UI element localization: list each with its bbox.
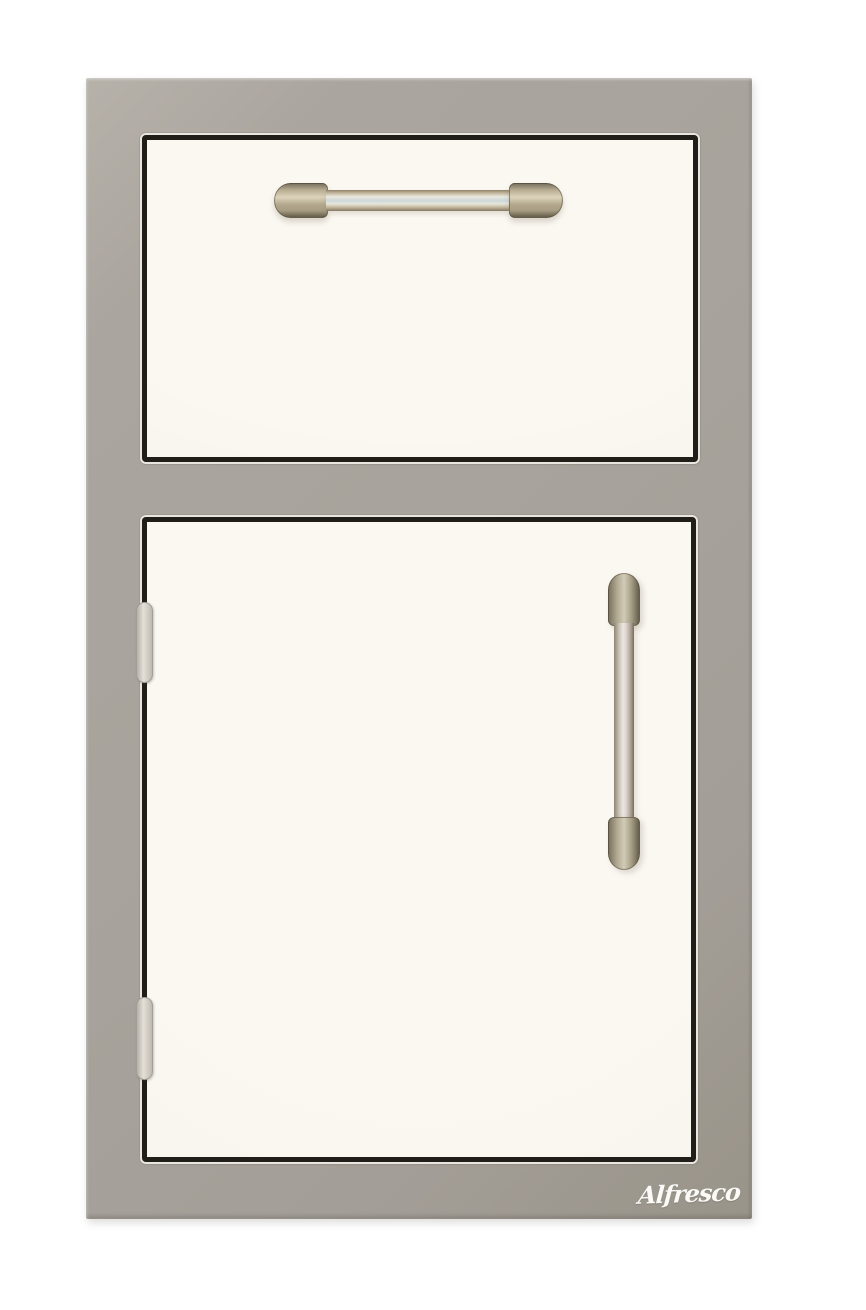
brand-logo: Alfresco [637,1180,741,1208]
door-hinge-top [136,602,153,683]
door-hinge-bottom [136,997,153,1080]
drawer-handle-end-cap-right [509,183,563,218]
door-handle-bar [614,623,634,820]
drawer-handle-bar [326,190,511,211]
cabinet-frame: Alfresco [86,78,752,1219]
door-handle-end-cap-bottom [608,817,640,870]
door-handle [608,573,640,870]
product-photo: Alfresco [0,0,866,1310]
drawer-handle [274,183,563,218]
door-handle-end-cap-top [608,573,640,626]
drawer-handle-end-cap-left [274,183,328,218]
